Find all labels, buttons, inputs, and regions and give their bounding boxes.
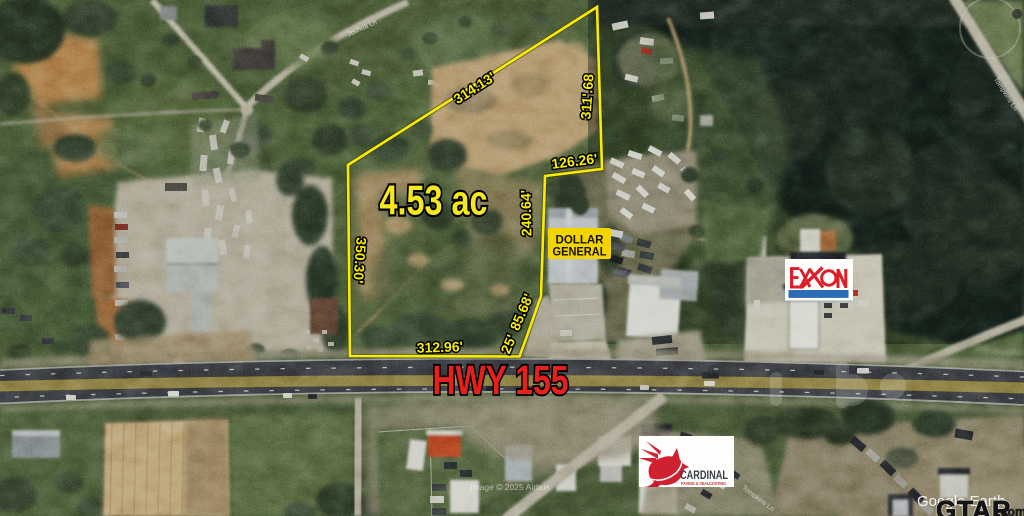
svg-text:PAVING & SEALCOATING: PAVING & SEALCOATING xyxy=(681,481,726,486)
svg-text:HWY 155: HWY 155 xyxy=(433,357,569,403)
svg-text:4.53 ac: 4.53 ac xyxy=(380,177,488,224)
svg-text:GENERAL: GENERAL xyxy=(553,245,607,259)
svg-text:350.30': 350.30' xyxy=(350,237,369,284)
svg-text:240.64': 240.64' xyxy=(518,190,535,236)
svg-text:312.96': 312.96' xyxy=(416,338,463,356)
svg-text:311'.68: 311'.68 xyxy=(577,73,596,120)
svg-text:Image © 2025 Airbus: Image © 2025 Airbus xyxy=(470,482,550,492)
svg-text:.com: .com xyxy=(997,505,1024,516)
